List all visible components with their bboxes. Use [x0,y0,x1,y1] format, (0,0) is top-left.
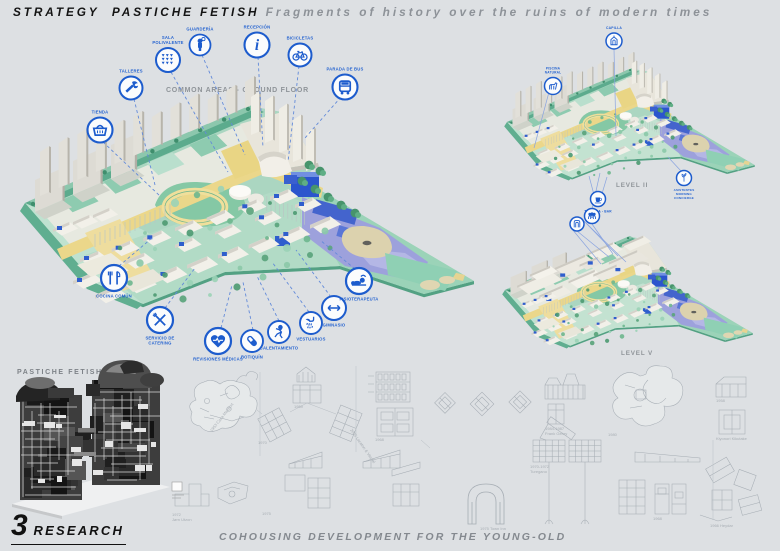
svg-text:1959: 1959 [294,404,304,409]
svg-text:PARADA DE BUS: PARADA DE BUS [326,67,363,72]
svg-text:Kiyonori Kikutake: Kiyonori Kikutake [716,436,748,441]
svg-text:GUARDERÍA: GUARDERÍA [186,27,213,32]
svg-text:i: i [255,37,260,54]
svg-text:RECEPCIÓN: RECEPCIÓN [244,25,271,30]
svg-text:Frank Gehry: Frank Gehry [545,431,567,436]
svg-text:1975 Town Inn: 1975 Town Inn [480,526,506,531]
svg-text:CATERING: CATERING [148,341,171,346]
svg-text:1975: 1975 [262,511,272,516]
svg-text:POLIVALENTE: POLIVALENTE [152,40,183,45]
svg-text:REVISIONES MÉDICAS: REVISIONES MÉDICAS [193,357,243,362]
svg-text:Jørn Utzon: Jørn Utzon [172,517,192,522]
svg-text:1958: 1958 [716,398,726,403]
svg-text:GIMNASIO: GIMNASIO [323,323,346,328]
svg-text:CALENTAMIENTO: CALENTAMIENTO [260,346,299,351]
svg-text:1968: 1968 [653,516,663,521]
svg-text:BICICLETAS: BICICLETAS [287,36,314,41]
svg-text:TIENDA: TIENDA [92,110,109,115]
svg-text:CAPILLA: CAPILLA [606,26,622,30]
svg-text:1980: 1980 [608,432,618,437]
svg-text:COCINA COMÚN: COCINA COMÚN [96,294,132,299]
svg-text:VESTUARIOS: VESTUARIOS [296,337,325,342]
svg-text:FISIOTERAPEUTA: FISIOTERAPEUTA [339,297,378,302]
svg-text:1970: 1970 [258,440,268,445]
svg-text:2005 Lacaton & Vassal: 2005 Lacaton & Vassal [349,428,377,464]
svg-text:BOTIQUÍN: BOTIQUÍN [241,355,263,360]
svg-text:Turegano: Turegano [530,469,548,474]
svg-text:1966 Heydar: 1966 Heydar [710,523,734,528]
svg-text:TALLERES: TALLERES [119,69,142,74]
svg-text:1968: 1968 [375,437,385,442]
svg-text:CONCIERGE: CONCIERGE [674,196,694,200]
svg-text:NATURAL: NATURAL [545,71,562,75]
